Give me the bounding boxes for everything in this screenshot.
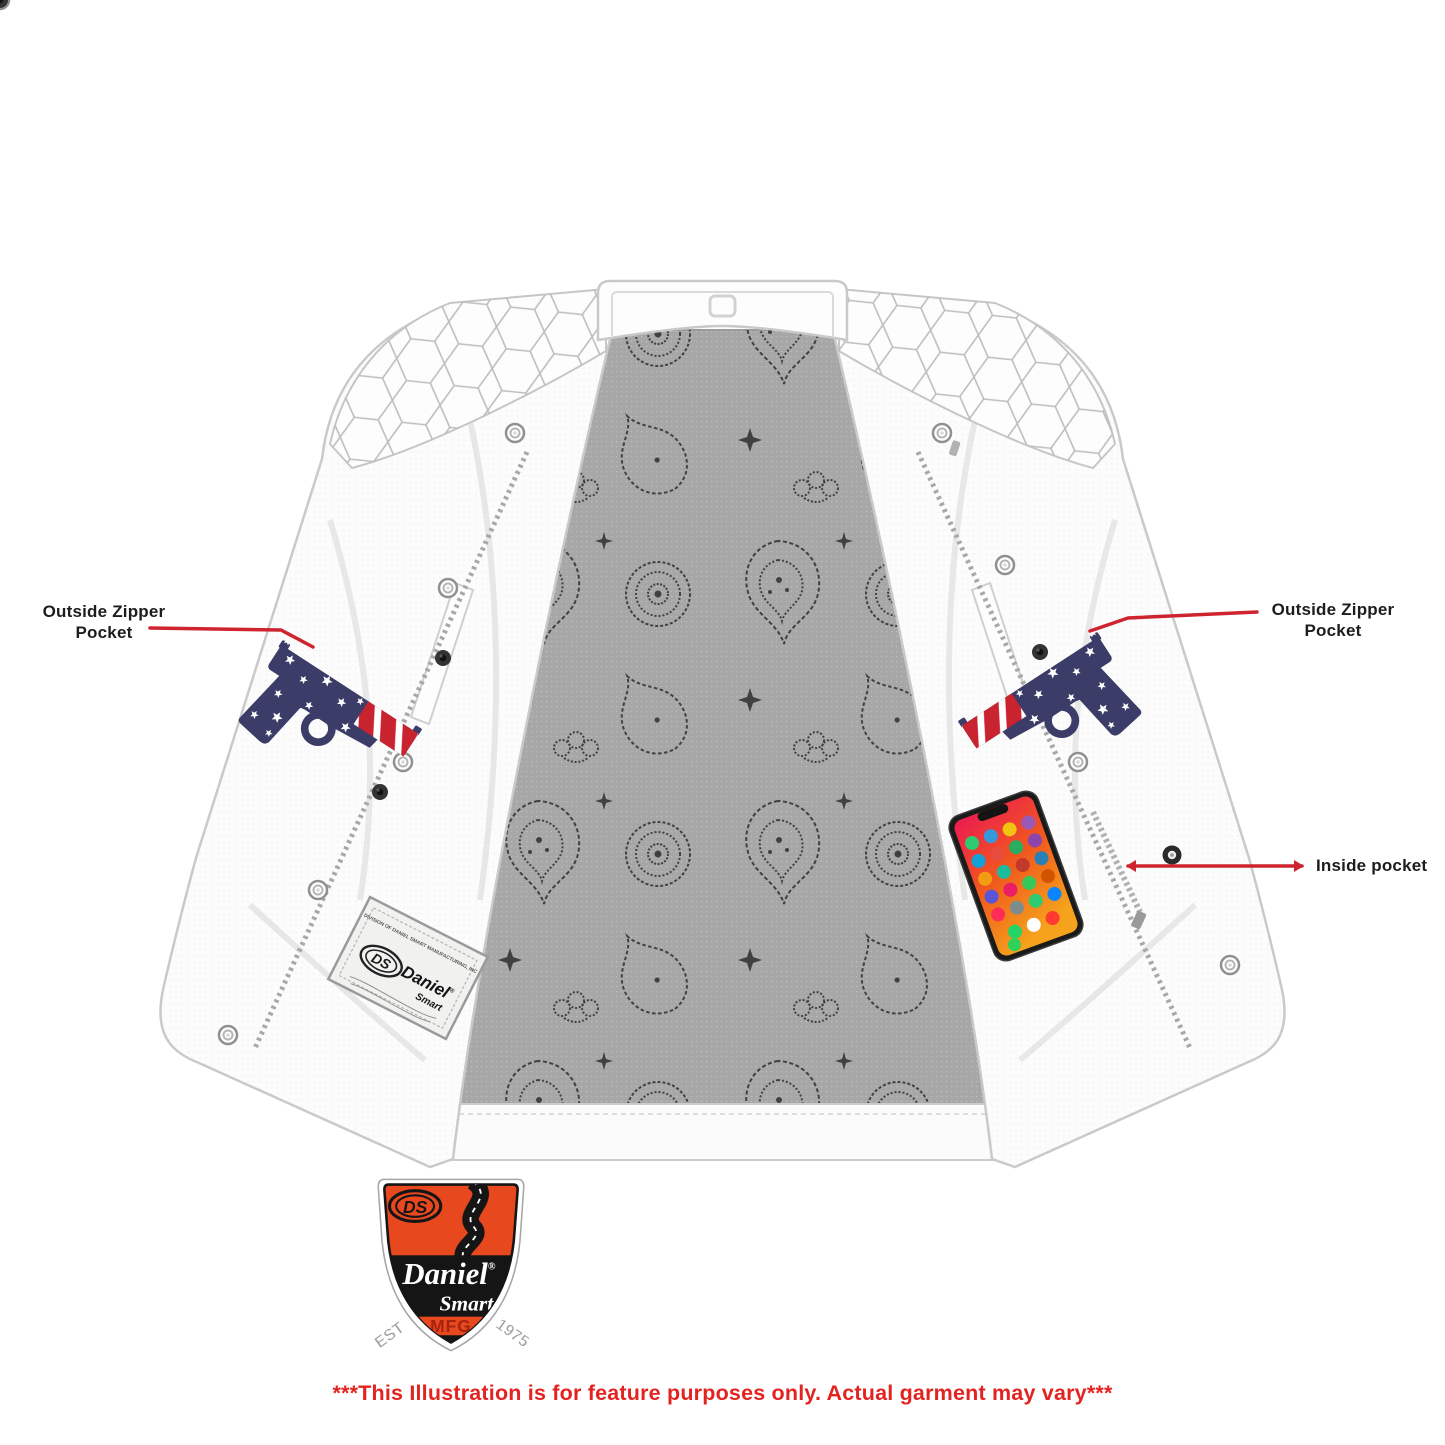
label-line: Outside Zipper bbox=[1248, 599, 1418, 620]
product-feature-diagram: DIVISION OF DANIEL SMART MANUFACTURING, … bbox=[0, 0, 1445, 1445]
logo-daniel-text: Daniel® bbox=[401, 1257, 495, 1291]
vest-illustration-svg: DIVISION OF DANIEL SMART MANUFACTURING, … bbox=[0, 0, 1445, 1445]
label-outside-zipper-pocket-right: Outside Zipper Pocket bbox=[1248, 599, 1418, 641]
logo-ds-emblem: DS bbox=[389, 1191, 440, 1222]
svg-text:DS: DS bbox=[403, 1197, 428, 1217]
label-line: Outside Zipper bbox=[24, 601, 184, 622]
logo-year-text: 1975 bbox=[492, 1315, 532, 1351]
label-outside-zipper-pocket-left: Outside Zipper Pocket bbox=[24, 601, 184, 643]
black-grommet bbox=[1163, 846, 1182, 865]
daniel-smart-mfg-logo: Daniel® Smart MFG DS EST 1975 bbox=[370, 1168, 532, 1360]
logo-smart-text: Smart bbox=[439, 1292, 494, 1316]
label-line: Inside pocket bbox=[1316, 855, 1445, 876]
label-line: Pocket bbox=[1248, 620, 1418, 641]
label-line: Pocket bbox=[24, 622, 184, 643]
disclaimer-text: ***This Illustration is for feature purp… bbox=[0, 1381, 1445, 1406]
label-inside-pocket: Inside pocket bbox=[1316, 855, 1445, 876]
vest-hem-band bbox=[437, 1104, 1014, 1160]
logo-est-text: EST bbox=[371, 1319, 407, 1352]
